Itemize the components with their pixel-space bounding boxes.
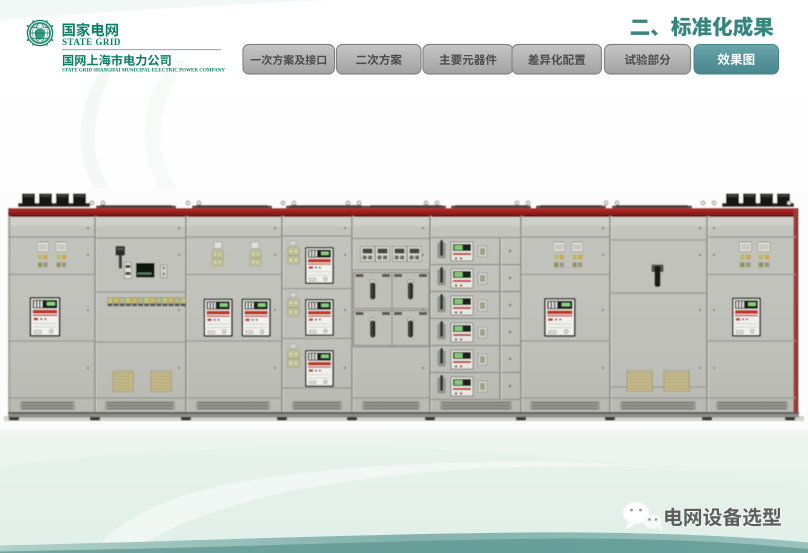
svg-text:STATE GRID: STATE GRID	[62, 37, 121, 47]
svg-text:STATE GRID SHANGHAI MUNICIPAL: STATE GRID SHANGHAI MUNICIPAL ELECTRIC P…	[62, 69, 225, 74]
